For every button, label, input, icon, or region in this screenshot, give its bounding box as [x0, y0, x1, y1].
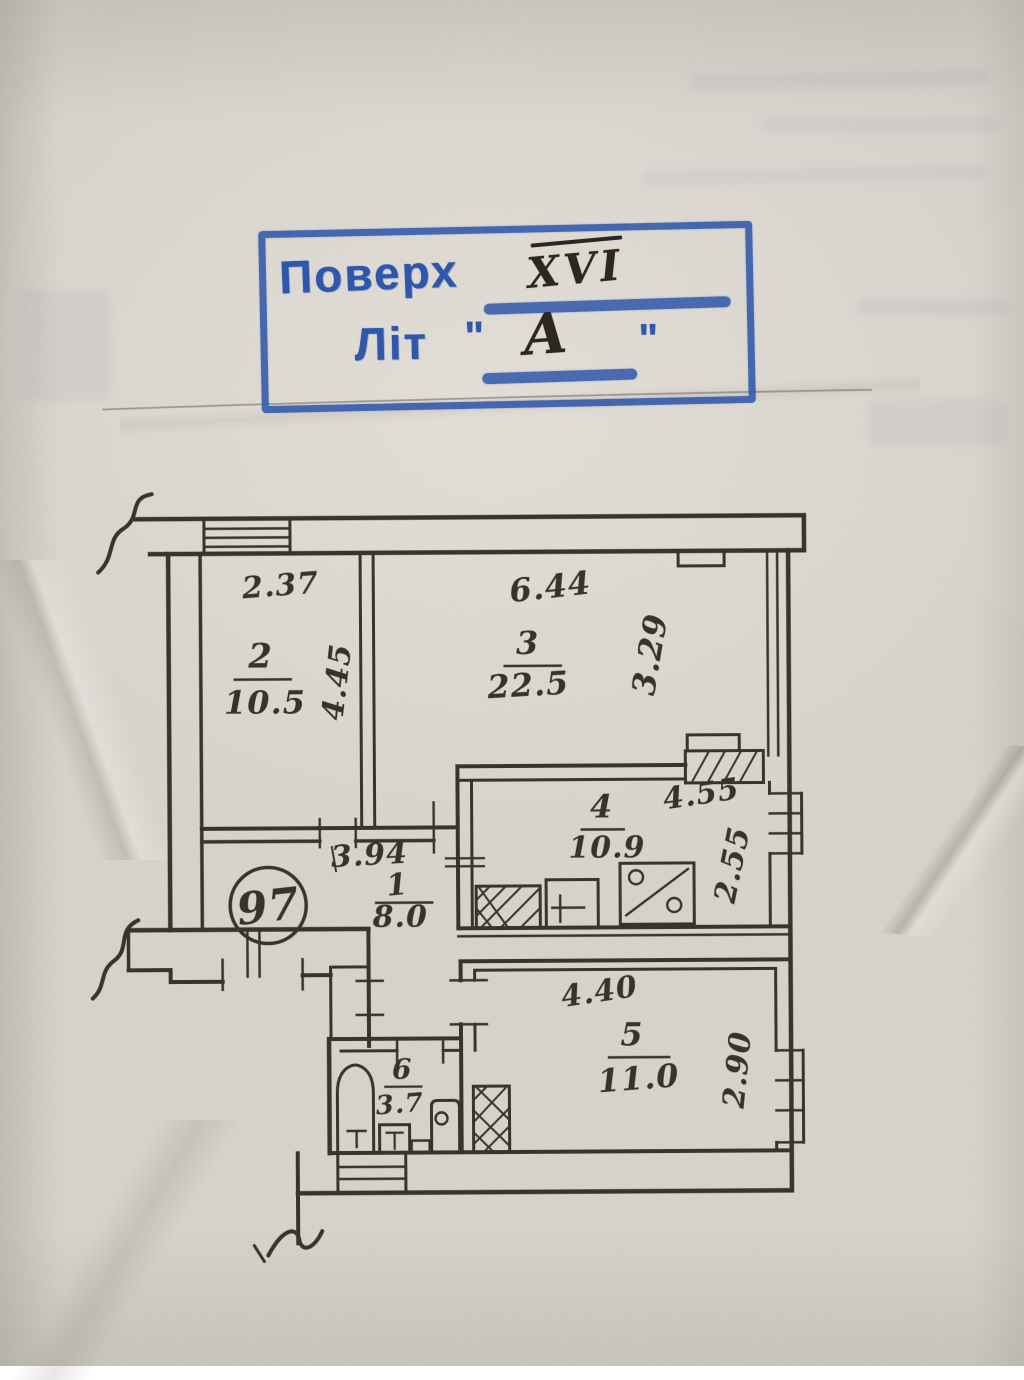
- wall-room5-top: [461, 959, 789, 970]
- wall-left-exterior: [168, 554, 202, 930]
- dim-room2-width: 2.37: [240, 566, 321, 607]
- stamp-letter-value-handwritten: А: [520, 300, 570, 369]
- kitchen-area: 10.9: [568, 830, 645, 865]
- stamp-floor-value-handwritten: XVI: [525, 240, 626, 298]
- room3-number: 3: [516, 624, 539, 662]
- stamp-open-quote: ": [464, 312, 485, 360]
- scanned-floor-plan-page: 97 2.37 2 10.5 4.45 6.44 3 22.5 3.29 4.5…: [0, 0, 1024, 1366]
- break-mark-top: [98, 494, 152, 572]
- bathroom-area: 3.7: [375, 1088, 425, 1122]
- room2-number: 2: [247, 636, 273, 676]
- floor-plan-drawing: 97 2.37 2 10.5 4.45 6.44 3 22.5 3.29 4.5…: [0, 0, 1024, 1366]
- vent-shaft-room5: [473, 1086, 509, 1152]
- room2-area: 10.5: [224, 683, 306, 721]
- stamp-floor-label: Поверх: [278, 243, 459, 304]
- bathroom-number: 6: [392, 1053, 413, 1086]
- kitchen-door-ticks: [446, 858, 484, 866]
- wall-bottom-exterior: [254, 1150, 791, 1261]
- dim-room5-depth: 2.90: [716, 1030, 759, 1111]
- dim-room2-depth: 4.45: [316, 642, 360, 723]
- hall-area: 8.0: [372, 900, 428, 935]
- apartment-number-badge: 97: [230, 867, 306, 943]
- stamp-letter-label: Літ: [354, 316, 429, 372]
- break-mark-bottom: [268, 1231, 322, 1255]
- dim-room3-width: 6.44: [507, 563, 593, 610]
- window-kitchen: [770, 793, 802, 853]
- bathtub: [337, 1065, 374, 1153]
- window-room2: [204, 518, 290, 554]
- room5-area: 11.0: [596, 1056, 681, 1100]
- dim-room5-width: 4.40: [559, 969, 640, 1015]
- floor-letter-stamp: Поверх XVI Літ " А ": [258, 221, 756, 413]
- wall-room2-room3: [360, 553, 375, 828]
- kitchen-vent-box: [476, 886, 540, 928]
- window-bathroom-wall: [338, 1153, 406, 1193]
- closet-walls: [331, 967, 369, 1039]
- apartment-number: 97: [234, 878, 302, 936]
- bathroom-sink: [380, 1125, 410, 1153]
- wall-right-exterior: [767, 550, 792, 1190]
- entry-vestibule: [92, 919, 383, 1048]
- kitchen-sink: [546, 879, 598, 927]
- kitchen-stove: [620, 863, 694, 924]
- room5-door-ticks: [451, 980, 487, 1024]
- wall-room5-left: [451, 961, 488, 1152]
- entry-door-ticks: [223, 959, 303, 989]
- room5-number: 5: [620, 1015, 643, 1053]
- dim-room3-depth: 3.29: [624, 611, 675, 698]
- stamp-close-quote: ": [638, 315, 659, 363]
- hall-number: 1: [385, 867, 410, 904]
- dim-kitchen-depth: 2.55: [708, 823, 758, 907]
- kitchen-number: 4: [590, 787, 613, 825]
- room3-area: 22.5: [485, 664, 570, 707]
